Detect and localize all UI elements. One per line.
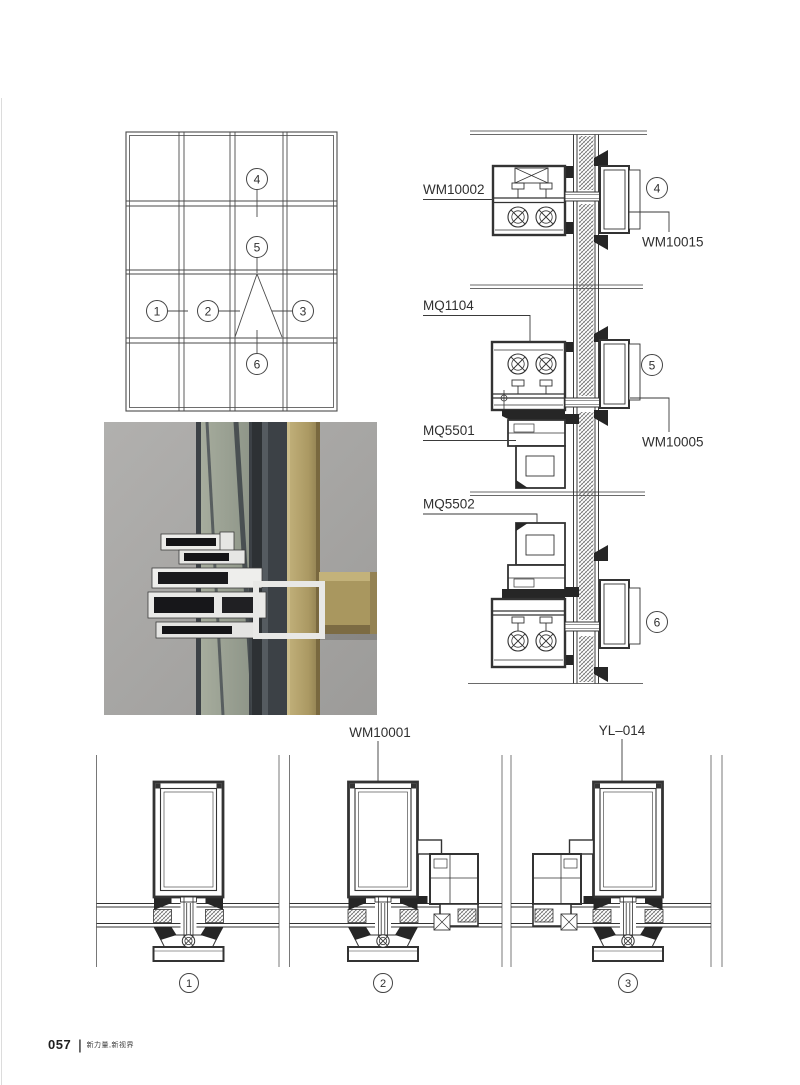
callout-4-section: 4 [647, 178, 668, 199]
vertical-section-details: WM10002 WM10015 4 [418, 128, 710, 690]
footer-divider: | [78, 1036, 81, 1052]
page-footer: 057 | 新力量,新视界 [48, 1037, 134, 1052]
detail-1-drawing [154, 782, 224, 961]
callout-3-section: 3 [619, 974, 638, 993]
elevation-grid [126, 132, 337, 411]
callout-6-section-number: 6 [654, 616, 661, 630]
detail-3-drawing [593, 782, 663, 961]
callout-3: 3 [293, 301, 314, 322]
callout-1-section-number: 1 [186, 978, 192, 990]
label-wm10015: WM10015 [642, 235, 704, 250]
label-mq5502: MQ5502 [423, 497, 475, 512]
footer-slogan: 新力量,新视界 [87, 1040, 134, 1050]
callout-2-number: 2 [205, 305, 212, 319]
elevation-grid-drawing: 1 2 3 4 5 6 [120, 125, 355, 420]
callout-4-number: 4 [254, 173, 261, 187]
label-wm10001: WM10001 [349, 725, 411, 740]
leader-wm10005 [630, 398, 669, 432]
label-yl014: YL–014 [599, 723, 646, 738]
profile-render-photo [104, 422, 377, 715]
label-mq1104: MQ1104 [423, 298, 474, 313]
callout-5-section-number: 5 [649, 359, 656, 373]
detail-5-drawing [492, 326, 640, 488]
detail-6-drawing [492, 523, 640, 682]
page-number: 057 [48, 1037, 71, 1052]
mullion-glazing [574, 135, 599, 684]
callout-3-number: 3 [300, 305, 307, 319]
catalog-page: 1 2 3 4 5 6 [0, 0, 800, 1085]
photo-gold-mullion [287, 422, 320, 715]
leader-mq5502 [423, 514, 537, 523]
callout-1-section: 1 [180, 974, 199, 993]
callout-4: 4 [247, 169, 268, 190]
detail-2-vent-sash [418, 840, 479, 930]
transom-rails [97, 904, 712, 928]
horizontal-section-details: WM10001 YL–014 [80, 718, 750, 1010]
awning-window-symbol [235, 274, 282, 337]
callout-2-section: 2 [374, 974, 393, 993]
label-mq5501: MQ5501 [423, 423, 475, 438]
callout-6: 6 [247, 354, 268, 375]
callout-1-number: 1 [154, 305, 161, 319]
detail-3-vent-sash [533, 840, 594, 930]
label-wm10002: WM10002 [423, 182, 485, 197]
callout-5-section: 5 [642, 355, 663, 376]
detail-2-drawing [348, 782, 418, 961]
callout-5-number: 5 [254, 241, 261, 255]
detail-4-drawing [493, 150, 640, 250]
callout-5: 5 [247, 237, 268, 258]
callout-6-section: 6 [647, 612, 668, 633]
callout-2-section-number: 2 [380, 978, 386, 990]
callout-4-section-number: 4 [654, 182, 661, 196]
page-edge-line [1, 98, 2, 1085]
label-wm10005: WM10005 [642, 435, 704, 450]
leader-mq1104 [423, 316, 530, 343]
photo-gold-transom-arm [319, 572, 377, 640]
callout-2: 2 [198, 301, 219, 322]
callout-6-number: 6 [254, 358, 261, 372]
callout-1: 1 [147, 301, 168, 322]
callout-3-section-number: 3 [625, 978, 631, 990]
